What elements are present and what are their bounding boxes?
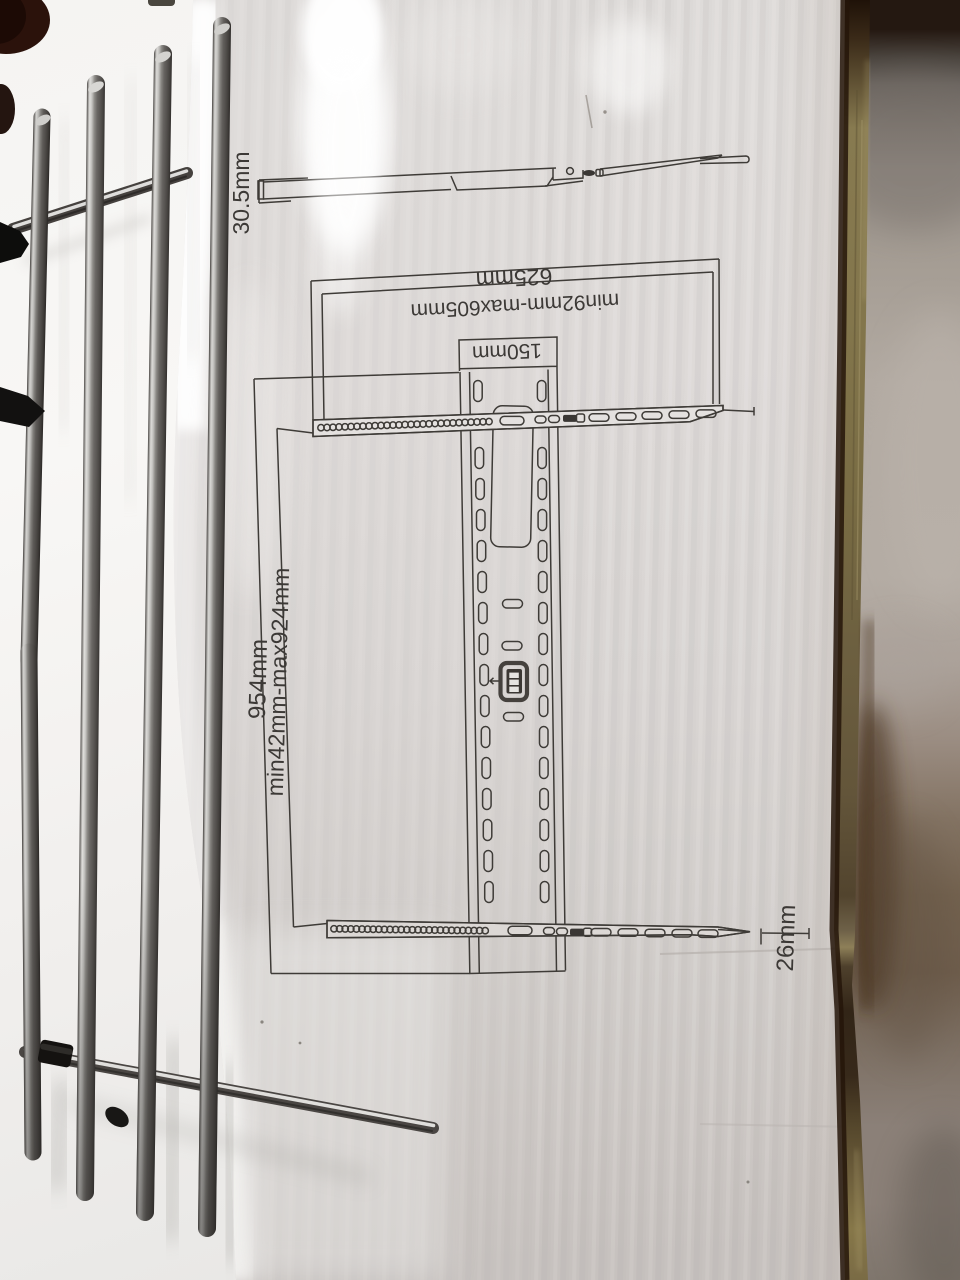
svg-text:30.5mm: 30.5mm [228,151,254,234]
svg-text:625mm: 625mm [475,264,553,294]
svg-text:150mm: 150mm [471,338,542,364]
svg-text:26mm: 26mm [772,904,801,972]
